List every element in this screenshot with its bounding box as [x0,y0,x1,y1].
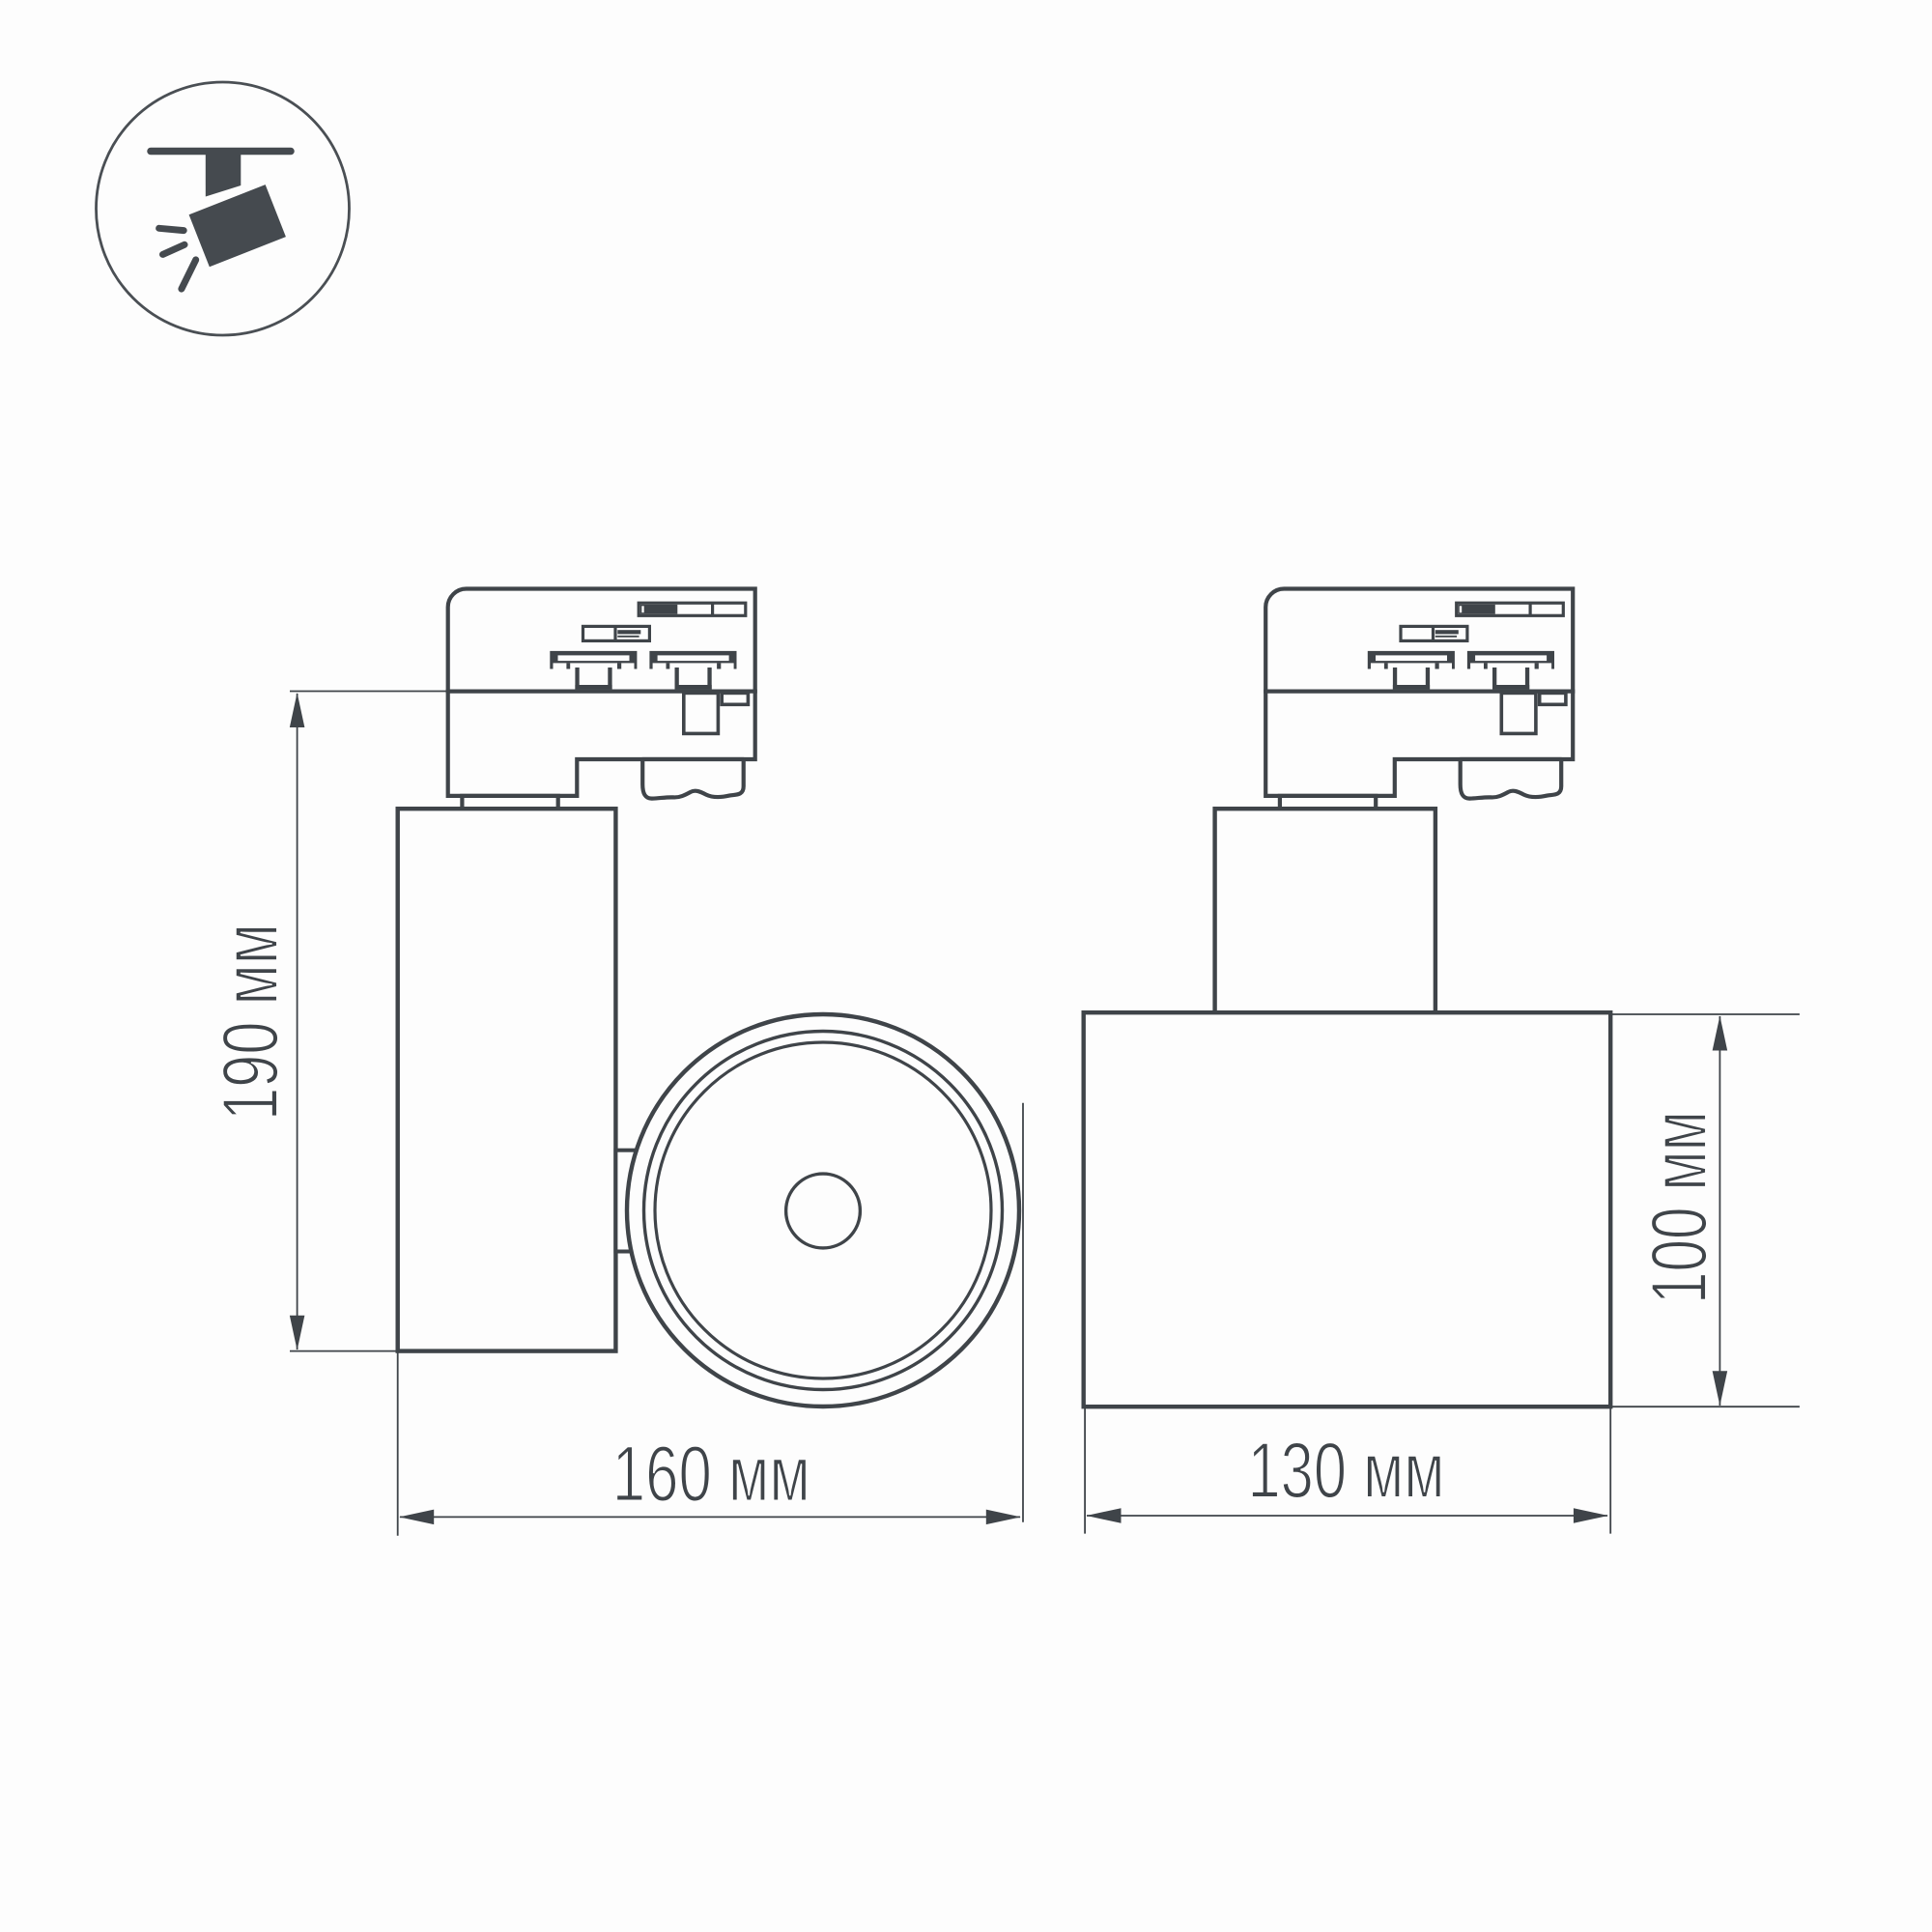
svg-text:160 мм: 160 мм [612,1431,810,1519]
svg-text:100 мм: 100 мм [1635,1111,1723,1304]
svg-text:190 мм: 190 мм [207,923,295,1121]
svg-text:130 мм: 130 мм [1248,1427,1445,1515]
